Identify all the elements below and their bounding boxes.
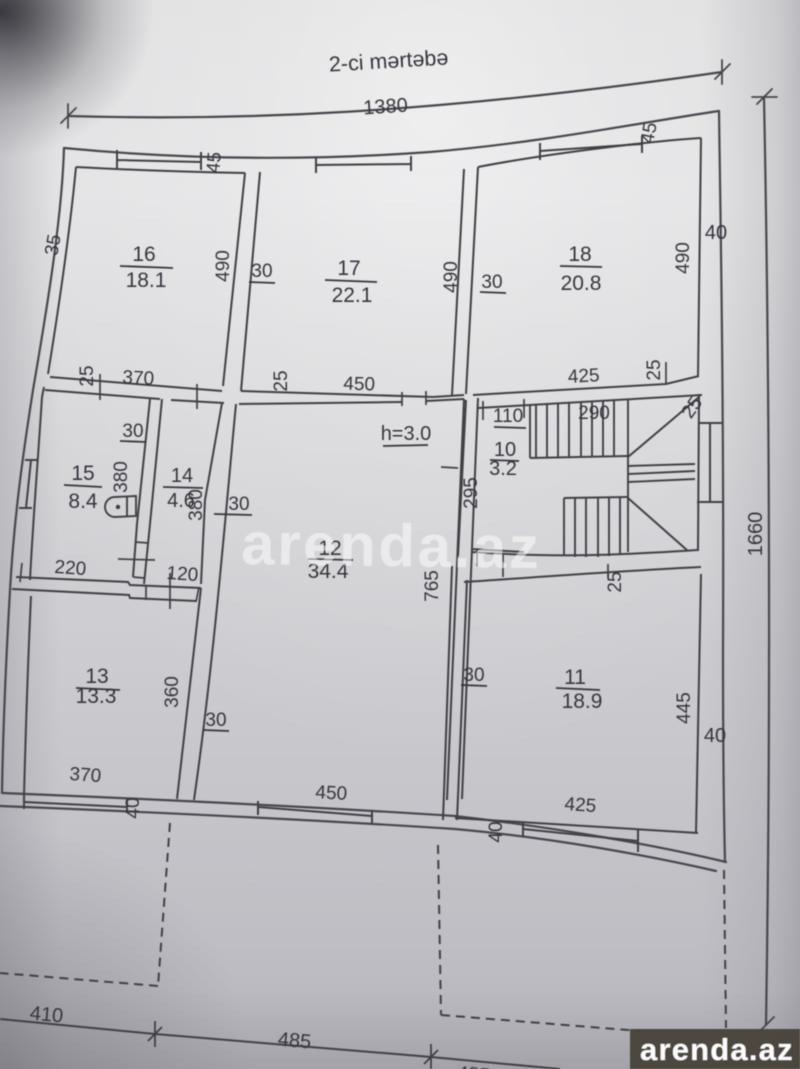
svg-text:370: 370 bbox=[122, 367, 155, 390]
svg-text:25: 25 bbox=[605, 571, 626, 592]
svg-text:490: 490 bbox=[673, 242, 694, 274]
svg-text:40: 40 bbox=[486, 821, 507, 842]
svg-text:370: 370 bbox=[69, 764, 102, 787]
svg-text:425: 425 bbox=[567, 365, 600, 388]
svg-text:110: 110 bbox=[493, 406, 523, 427]
svg-text:220: 220 bbox=[54, 557, 87, 580]
svg-text:450: 450 bbox=[343, 373, 375, 395]
svg-text:20.8: 20.8 bbox=[561, 272, 602, 295]
svg-text:18: 18 bbox=[568, 243, 591, 266]
svg-text:22.1: 22.1 bbox=[332, 284, 373, 307]
svg-text:18.9: 18.9 bbox=[562, 690, 603, 713]
svg-text:490: 490 bbox=[441, 261, 462, 293]
svg-text:h=3.0: h=3.0 bbox=[381, 423, 432, 445]
svg-text:410: 410 bbox=[29, 1003, 64, 1028]
svg-text:45: 45 bbox=[637, 121, 661, 145]
svg-text:17: 17 bbox=[337, 257, 360, 280]
svg-text:11: 11 bbox=[564, 666, 586, 689]
svg-text:380: 380 bbox=[186, 489, 207, 521]
svg-text:arenda.az: arenda.az bbox=[241, 510, 542, 581]
svg-text:14: 14 bbox=[171, 465, 193, 487]
svg-text:40: 40 bbox=[704, 725, 726, 747]
svg-text:30: 30 bbox=[481, 272, 502, 293]
svg-text:25: 25 bbox=[77, 365, 98, 386]
svg-text:380: 380 bbox=[111, 461, 132, 493]
svg-text:425: 425 bbox=[564, 794, 597, 817]
svg-text:18.1: 18.1 bbox=[126, 269, 167, 292]
svg-text:360: 360 bbox=[162, 676, 183, 708]
svg-text:40: 40 bbox=[123, 797, 144, 818]
svg-text:485: 485 bbox=[277, 1029, 312, 1054]
svg-text:25: 25 bbox=[271, 370, 292, 391]
svg-text:30: 30 bbox=[205, 710, 226, 731]
svg-text:290: 290 bbox=[578, 403, 610, 424]
svg-text:120: 120 bbox=[166, 563, 199, 586]
svg-text:25: 25 bbox=[644, 359, 665, 380]
svg-text:1660: 1660 bbox=[745, 512, 767, 557]
svg-text:295: 295 bbox=[461, 477, 482, 509]
svg-text:30: 30 bbox=[463, 665, 484, 686]
svg-text:40: 40 bbox=[705, 222, 727, 244]
svg-text:30: 30 bbox=[251, 261, 272, 282]
svg-text:450: 450 bbox=[315, 782, 348, 805]
svg-text:45: 45 bbox=[203, 151, 226, 174]
svg-text:8.4: 8.4 bbox=[68, 490, 98, 513]
svg-text:35: 35 bbox=[41, 233, 65, 257]
svg-text:30: 30 bbox=[122, 421, 143, 442]
svg-text:15: 15 bbox=[71, 462, 94, 485]
svg-text:3.2: 3.2 bbox=[489, 458, 517, 480]
svg-text:490: 490 bbox=[213, 250, 234, 282]
svg-text:445: 445 bbox=[674, 692, 695, 724]
svg-text:1380: 1380 bbox=[363, 94, 409, 119]
svg-text:arenda.az: arenda.az bbox=[640, 1032, 794, 1067]
svg-text:13.3: 13.3 bbox=[76, 685, 117, 708]
svg-text:16: 16 bbox=[132, 243, 155, 266]
